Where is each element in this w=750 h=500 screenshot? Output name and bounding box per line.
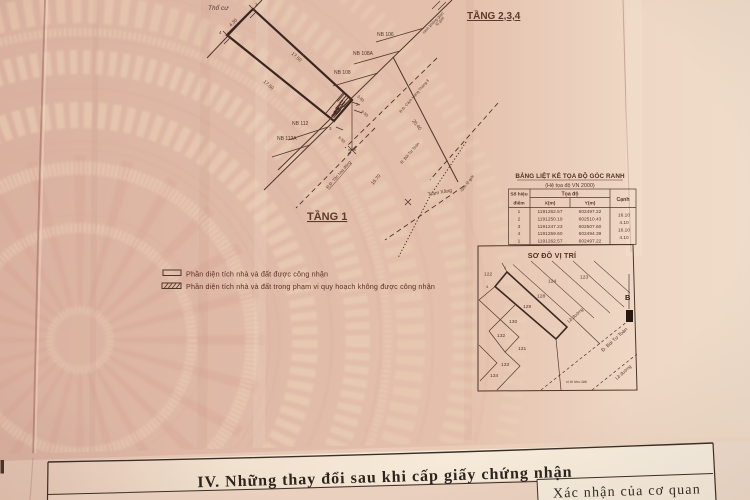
svg-text:B: B	[625, 293, 631, 302]
svg-text:(Hệ tọa độ VN 2000): (Hệ tọa độ VN 2000)	[545, 183, 595, 189]
svg-text:122: 122	[484, 272, 492, 278]
svg-text:Phần diện tích nhà và đất tron: Phần diện tích nhà và đất trong phạm vi …	[186, 282, 435, 291]
svg-text:TẦNG 1: TẦNG 1	[307, 210, 347, 223]
svg-text:602497.22: 602497.22	[579, 209, 602, 215]
svg-text:NB 112A: NB 112A	[277, 136, 297, 142]
svg-text:Thổ cư: Thổ cư	[208, 4, 229, 12]
svg-text:132: 132	[497, 333, 505, 339]
svg-text:129: 129	[523, 304, 531, 310]
svg-text:1191250.19: 1191250.19	[538, 216, 563, 222]
svg-text:SƠ ĐỒ VỊ TRÍ: SƠ ĐỒ VỊ TRÍ	[528, 250, 577, 260]
svg-text:133: 133	[501, 362, 509, 368]
svg-text:1191262.57: 1191262.57	[538, 209, 563, 215]
svg-text:Y(m): Y(m)	[585, 201, 596, 207]
svg-text:602497.22: 602497.22	[579, 239, 602, 245]
svg-text:2: 2	[518, 216, 521, 222]
svg-text:128: 128	[537, 294, 545, 300]
svg-text:130: 130	[509, 319, 517, 325]
svg-text:1191259.60: 1191259.60	[538, 231, 563, 237]
svg-text:Số hiệu: Số hiệu	[510, 191, 527, 198]
svg-text:Cạnh: Cạnh	[617, 197, 630, 203]
svg-text:1191247.23: 1191247.23	[538, 224, 563, 230]
svg-text:602507.60: 602507.60	[579, 224, 602, 230]
svg-text:BẢNG LIỆT KÊ TỌA ĐỘ GÓC RANH: BẢNG LIỆT KÊ TỌA ĐỘ GÓC RANH	[515, 171, 625, 180]
svg-text:124: 124	[548, 279, 556, 285]
svg-text:TẦNG 2,3,4: TẦNG 2,3,4	[467, 9, 521, 22]
svg-text:4.10: 4.10	[619, 220, 629, 226]
svg-text:Tọa độ: Tọa độ	[561, 192, 578, 198]
svg-text:vị trí khu đất: vị trí khu đất	[566, 380, 588, 384]
svg-text:602510.43: 602510.43	[579, 216, 602, 222]
svg-text:Phần diện tích nhà và đất được: Phần diện tích nhà và đất được công nhận	[186, 270, 328, 279]
svg-text:602494.39: 602494.39	[579, 231, 602, 237]
svg-text:3: 3	[518, 224, 521, 230]
svg-text:Xác nhận của cơ quan: Xác nhận của cơ quan	[553, 482, 701, 500]
svg-text:NB 106: NB 106	[377, 32, 394, 38]
svg-text:16.10: 16.10	[618, 228, 630, 234]
svg-text:X(m): X(m)	[545, 201, 556, 207]
svg-text:123: 123	[580, 275, 588, 281]
svg-text:điểm: điểm	[513, 200, 524, 207]
svg-text:4: 4	[518, 231, 521, 237]
svg-text:NB 108A: NB 108A	[353, 51, 374, 57]
svg-text:NB 108: NB 108	[334, 70, 351, 76]
svg-text:16.10: 16.10	[618, 213, 630, 219]
svg-text:134: 134	[490, 373, 498, 379]
svg-text:4.10: 4.10	[619, 235, 629, 241]
svg-text:1191262.57: 1191262.57	[538, 239, 563, 245]
svg-text:131: 131	[518, 346, 526, 352]
svg-text:1: 1	[518, 209, 521, 215]
svg-text:1: 1	[518, 239, 521, 245]
svg-text:NB 112: NB 112	[292, 121, 309, 127]
